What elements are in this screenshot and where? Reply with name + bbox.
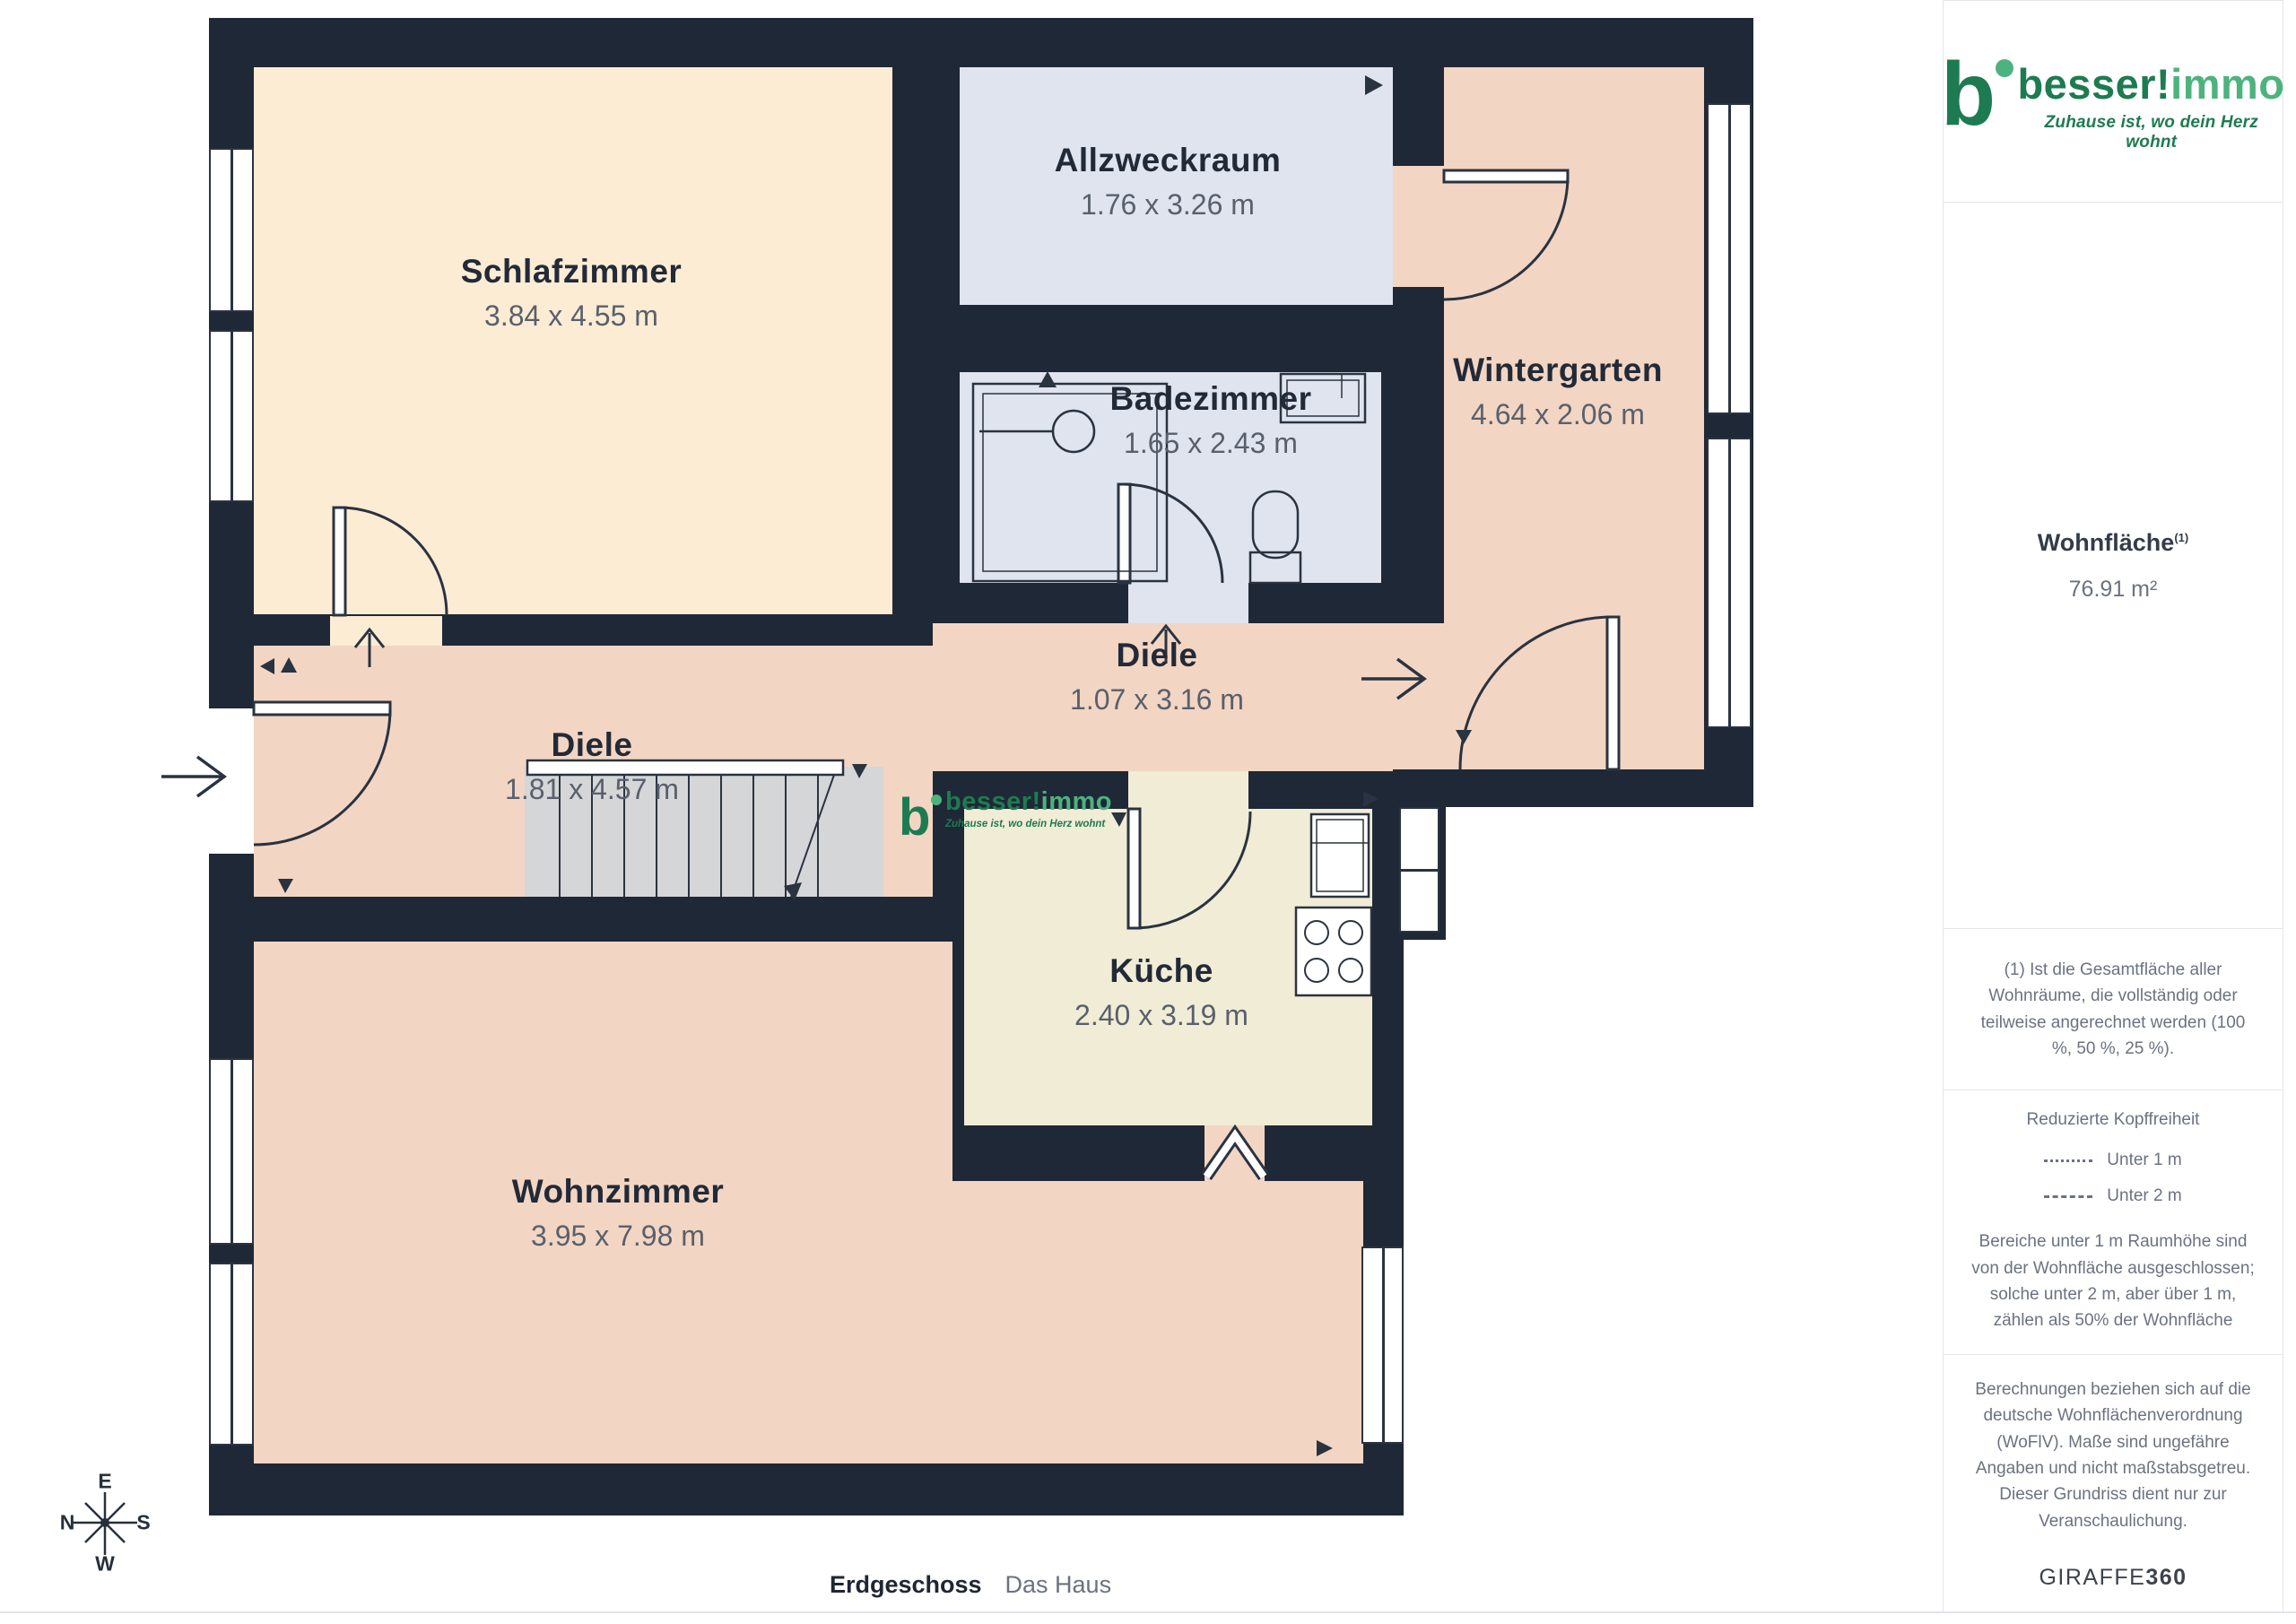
brand-primary: besser! — [945, 787, 1041, 816]
headroom-section: Reduzierte Kopffreiheit Unter 1 m Unter … — [1944, 1090, 2283, 1355]
info-sidebar: b besser!immo Zuhause ist, wo dein Herz … — [1943, 0, 2283, 1613]
window-wintergarten-1 — [1707, 103, 1752, 414]
legend-row-under-1m: Unter 1 m — [2044, 1151, 2181, 1170]
window-mullion — [1728, 439, 1731, 726]
giraffe360-brand: GIRAFFE360 — [2039, 1565, 2187, 1591]
floor-kueche-door-opening — [1128, 771, 1248, 809]
disclaimer-text: Berechnungen beziehen sich auf die deuts… — [1969, 1376, 2257, 1535]
room-label-kueche: Küche 2.40 x 3.19 m — [1074, 952, 1248, 1032]
floor-bad-door-opening — [1128, 583, 1248, 623]
window-mullion — [230, 150, 233, 310]
room-label-allzweckraum: Allzweckraum 1.76 x 3.26 m — [1055, 142, 1282, 221]
disclaimer-section: Berechnungen beziehen sich auf die deuts… — [1944, 1355, 2283, 1612]
window-mullion — [230, 332, 233, 500]
room-name: Diele — [505, 726, 679, 764]
footnote-section: (1) Ist die Gesamtfläche aller Wohnräume… — [1944, 929, 2283, 1090]
logo-wordmark: besser!immo — [2017, 63, 2284, 105]
watermark-tagline: Zuhause ist, wo dein Herz wohnt — [945, 819, 1112, 829]
room-label-schlafzimmer: Schlafzimmer 3.84 x 4.55 m — [461, 253, 683, 333]
legend-row-under-2m: Unter 2 m — [2044, 1186, 2181, 1206]
headroom-title: Reduzierte Kopffreiheit — [2027, 1110, 2200, 1130]
floor-plan: Schlafzimmer 3.84 x 4.55 m Allzweckraum … — [0, 0, 1942, 1624]
giraffe-name: GIRAFFE — [2039, 1565, 2145, 1590]
brand-b-glyph: b — [1941, 56, 1996, 133]
window-schlafzimmer-1 — [209, 148, 254, 312]
living-area-label: Wohnfläche(1) — [2038, 529, 2188, 557]
room-label-diele-hall: Diele 1.81 x 4.57 m — [505, 726, 679, 806]
room-dims: 3.95 x 7.98 m — [512, 1220, 725, 1253]
floor-kueche-wohnzimmer-opening — [1205, 1125, 1265, 1181]
brand-icon: b — [1941, 50, 2006, 133]
room-label-badezimmer: Badezimmer 1.65 x 2.43 m — [1109, 380, 1311, 460]
footnote-marker: (1) — [2174, 531, 2188, 544]
room-name: Wintergarten — [1453, 352, 1663, 389]
window-mullion — [1382, 1248, 1385, 1442]
brand-dot-icon — [931, 795, 942, 805]
room-dims: 1.76 x 3.26 m — [1055, 188, 1282, 221]
brand-primary: besser! — [2017, 60, 2170, 108]
giraffe-suffix: 360 — [2145, 1565, 2187, 1590]
floor-wintergarten-door-opening-top — [1393, 166, 1444, 287]
window-wohnzimmer-1 — [209, 1058, 254, 1245]
room-label-wohnzimmer: Wohnzimmer 3.95 x 7.98 m — [512, 1173, 725, 1253]
brand-icon: b — [899, 789, 938, 839]
room-dims: 1.07 x 3.16 m — [1070, 683, 1244, 716]
compass-south: S — [136, 1511, 150, 1535]
dashed-line-icon — [2044, 1195, 2092, 1198]
room-name: Badezimmer — [1109, 380, 1311, 418]
floor-wohnzimmer-extension — [952, 1181, 1363, 1463]
room-name: Wohnzimmer — [512, 1173, 725, 1211]
legend-label: Unter 1 m — [2107, 1151, 2181, 1170]
floor-schlafzimmer-door-opening — [330, 616, 442, 646]
window-schlafzimmer-2 — [209, 330, 254, 502]
brand-secondary: immo — [2170, 60, 2284, 108]
window-mullion — [230, 1060, 233, 1243]
legend-label: Unter 2 m — [2107, 1186, 2181, 1206]
room-label-wintergarten: Wintergarten 4.64 x 2.06 m — [1453, 352, 1663, 431]
room-dims: 1.81 x 4.57 m — [505, 773, 679, 806]
compass-west: W — [95, 1552, 115, 1576]
headroom-note: Bereiche unter 1 m Raumhöhe sind von der… — [1969, 1229, 2257, 1334]
window-wintergarten-2 — [1707, 438, 1752, 728]
dotted-line-icon — [2044, 1159, 2092, 1162]
room-dims: 3.84 x 4.55 m — [461, 300, 683, 333]
room-name: Allzweckraum — [1055, 142, 1282, 179]
logo-section: b besser!immo Zuhause ist, wo dein Herz … — [1944, 1, 2283, 203]
room-label-diele-center: Diele 1.07 x 3.16 m — [1070, 637, 1244, 716]
compass-star — [73, 1492, 137, 1555]
window-kueche — [1399, 807, 1439, 933]
window-wohnzimmer-right — [1361, 1246, 1404, 1444]
floor-schlafzimmer — [254, 67, 892, 614]
living-area-value: 76.91 m² — [2069, 577, 2158, 603]
room-name: Diele — [1070, 637, 1244, 674]
caption-floor-name: Erdgeschoss — [830, 1571, 982, 1598]
room-name: Küche — [1074, 952, 1248, 990]
living-area-section: Wohnfläche(1) 76.91 m² — [1944, 203, 2283, 929]
logo-tagline: Zuhause ist, wo dein Herz wohnt — [2017, 113, 2285, 152]
compass-north: N — [60, 1511, 75, 1535]
floor-caption: ErdgeschossDas Haus — [830, 1571, 1111, 1599]
compass-east: E — [98, 1470, 111, 1494]
window-mullion — [1401, 869, 1438, 872]
brand-dot-icon — [1996, 59, 2013, 77]
room-dims: 4.64 x 2.06 m — [1453, 398, 1663, 431]
window-wohnzimmer-2 — [209, 1263, 254, 1446]
window-mullion — [1728, 105, 1731, 413]
room-name: Schlafzimmer — [461, 253, 683, 291]
window-mullion — [230, 1264, 233, 1444]
brand-secondary: immo — [1041, 787, 1112, 816]
floor-wintergarten-door-opening-diele — [1393, 623, 1444, 769]
footnote-text: (1) Ist die Gesamtfläche aller Wohnräume… — [1969, 957, 2257, 1063]
caption-building-name: Das Haus — [1005, 1571, 1112, 1598]
room-dims: 1.65 x 2.43 m — [1109, 427, 1311, 460]
room-dims: 2.40 x 3.19 m — [1074, 999, 1248, 1032]
watermark-wordmark: besser!immo — [945, 789, 1112, 815]
living-area-title: Wohnfläche — [2038, 529, 2175, 556]
floor-plan-page: { "plan": { "rooms": [ {"name": "Schlafz… — [0, 0, 2296, 1624]
brand-b-glyph: b — [899, 795, 930, 839]
watermark-logo: b besser!immo Zuhause ist, wo dein Herz … — [899, 789, 1112, 839]
bottom-divider — [0, 1611, 2296, 1613]
entrance-opening — [209, 708, 254, 854]
